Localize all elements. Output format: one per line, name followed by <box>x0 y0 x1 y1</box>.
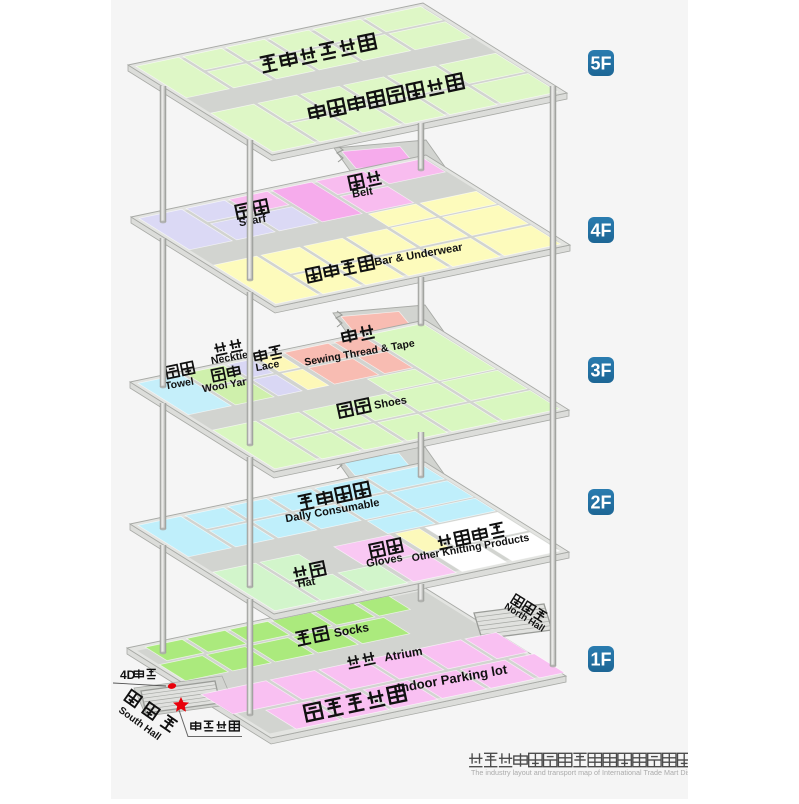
svg-text:3F: 3F <box>590 361 611 381</box>
svg-text:4F: 4F <box>590 221 611 241</box>
svg-text:4D: 4D <box>120 668 136 682</box>
svg-text:2F: 2F <box>590 493 611 513</box>
svg-text:5F: 5F <box>590 54 611 74</box>
svg-text:The industry layout and transp: The industry layout and transport map of… <box>471 768 720 777</box>
svg-text:1F: 1F <box>590 650 611 670</box>
